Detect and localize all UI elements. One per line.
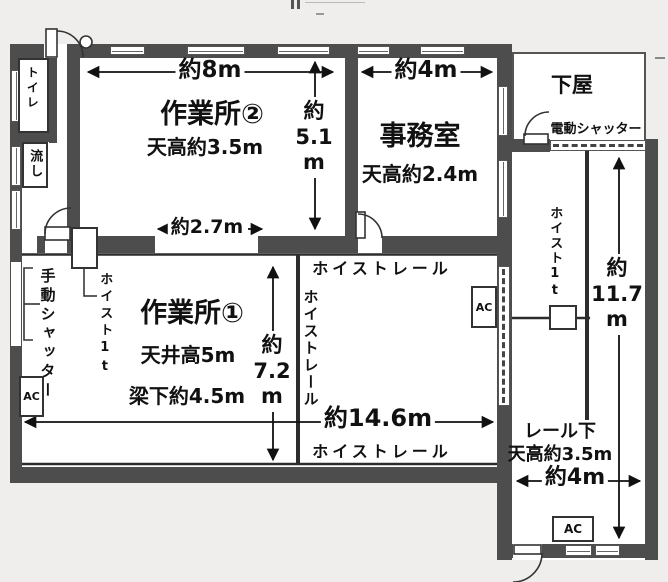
dimension-ws1-depth: 約 7.2 m — [252, 331, 291, 412]
scan-artifact — [655, 57, 665, 59]
room-name-office: 事務室 — [380, 122, 461, 152]
hoist-rail-label-bottom: ホイストレール — [312, 443, 452, 461]
lean-to-door-leaf — [524, 134, 548, 144]
scan-artifact — [316, 13, 324, 15]
room-name-toilet: トイレ — [25, 66, 38, 111]
entrance-door-knob — [80, 36, 92, 48]
hoist-label-left: ホイスト1t — [97, 272, 111, 378]
manual-shutter-bracket — [24, 268, 40, 340]
ceiling-height-office: 天高約2.4m — [362, 163, 478, 185]
floor-plan: AC AC AC 作業所② 天高約3.5m 事務室 天高約2.4m 作業所① 天… — [0, 0, 668, 582]
hoist-rail-label-top: ホイストレール — [312, 260, 452, 278]
room-name-workshop2: 作業所② — [160, 100, 264, 130]
scan-artifact — [291, 0, 294, 9]
dimension-ws2-depth: 約 5.1 m — [294, 97, 333, 178]
manual-shutter-label: 手動シャッター — [39, 268, 56, 401]
room-name-workshop1: 作業所① — [140, 299, 244, 329]
hoist-unit-right — [549, 305, 577, 330]
scan-artifact — [297, 0, 300, 9]
fixture-name-sink: 流し — [27, 149, 41, 179]
dimension-office-width: 約4m — [392, 58, 461, 83]
dimension-ws2-width: 約8m — [176, 58, 245, 83]
ceiling-height-workshop2: 天高約3.5m — [147, 136, 263, 158]
wing-door-arc — [513, 553, 542, 582]
hoist-rail-label-vertical: ホイストレール — [302, 289, 319, 408]
ac-label: AC — [564, 522, 582, 536]
beam-height-workshop1: 梁下約4.5m — [129, 385, 245, 407]
hoist-label-right: ホイスト1t — [547, 206, 561, 300]
ac-unit-center: AC — [471, 286, 497, 328]
ac-label: AC — [476, 301, 493, 314]
ac-unit-wing: AC — [552, 516, 594, 542]
hoist-unit-left — [71, 227, 98, 269]
office-door-leaf — [356, 212, 365, 238]
corridor-door-leaf — [45, 227, 70, 240]
electric-shutter-label: 電動シャッター — [550, 123, 641, 137]
room-name-under-rail: レール下 — [524, 422, 596, 442]
lean-to-door-arc — [525, 112, 549, 136]
entrance-door-leaf — [46, 29, 57, 57]
ac-label: AC — [23, 390, 40, 403]
dimension-main-width: 約14.6m — [321, 405, 435, 431]
scan-artifact — [305, 2, 365, 3]
ceiling-height-workshop1: 天井高5m — [141, 344, 236, 366]
wing-door-leaf — [514, 545, 541, 554]
dimension-wing-width: 約4m — [542, 466, 608, 490]
room-name-lean-to: 下屋 — [551, 74, 593, 97]
entrance-door-arc — [57, 31, 83, 57]
dimension-opening-width: 約2.7m — [168, 217, 246, 238]
ceiling-height-under-rail: 天高約3.5m — [508, 445, 613, 465]
dimension-wing-depth: 約 11.7 m — [590, 254, 644, 335]
